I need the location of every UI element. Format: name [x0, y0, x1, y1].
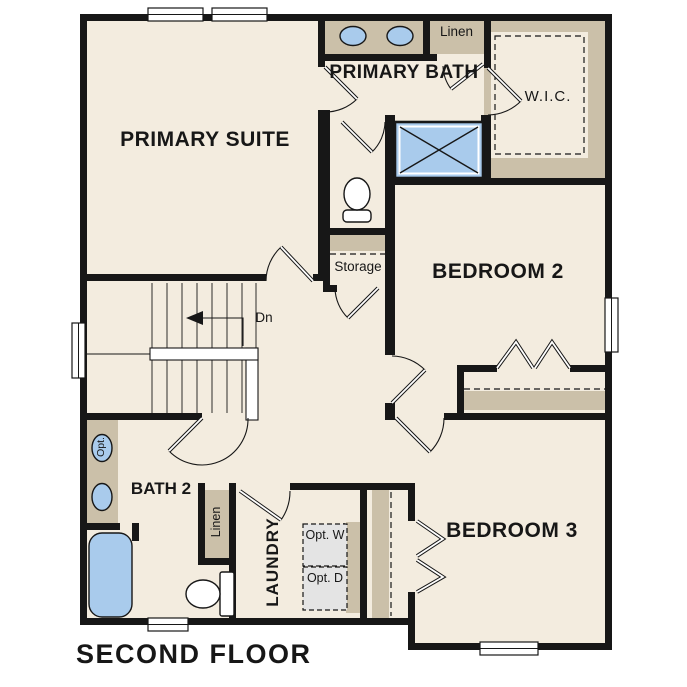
plan-title: SECOND FLOOR — [76, 639, 396, 670]
bath2-sink — [92, 484, 112, 511]
bedroom3-window — [480, 642, 538, 655]
bedroom2-window — [605, 298, 618, 352]
bath2-window — [148, 618, 188, 631]
linen-upper-label: Linen — [429, 24, 484, 39]
primary-bath-sink-right — [387, 27, 413, 46]
primary-suite-window-left — [148, 8, 203, 21]
optional-sink-label: Opt. — [95, 427, 107, 467]
laundry-label: LAUNDRY — [263, 502, 283, 622]
storage-label: Storage — [327, 259, 389, 274]
laundry-shelf — [346, 522, 360, 613]
primary-suite-label: PRIMARY SUITE — [105, 126, 305, 153]
stairs-dn-label: Dn — [249, 310, 279, 325]
wic-label: W.I.C. — [498, 88, 598, 105]
primary-bath-label: PRIMARY BATH — [324, 60, 484, 86]
bath2-label: BATH 2 — [111, 479, 211, 499]
stair-landing-window — [72, 323, 85, 378]
bedroom2-closet-shelf — [464, 391, 605, 410]
shower — [395, 122, 483, 178]
bath2-tub — [89, 533, 132, 617]
optional-dryer-label: Opt. D — [303, 571, 347, 586]
bedroom3-closet-shelf — [372, 490, 389, 618]
primary-suite-window-right — [212, 8, 267, 21]
primary-bath-sink-left — [340, 27, 366, 46]
floor-plan-page: PRIMARY SUITE PRIMARY BATH W.I.C. BEDROO… — [0, 0, 687, 687]
linen-lower-label: Linen — [209, 492, 223, 552]
primary-bath-toilet — [343, 178, 371, 222]
optional-washer-label: Opt. W — [303, 528, 347, 543]
stair-rail-horizontal — [150, 348, 258, 360]
bedroom2-label: BEDROOM 2 — [398, 258, 598, 285]
storage-shelf — [330, 235, 388, 251]
bedroom3-label: BEDROOM 3 — [412, 517, 612, 544]
